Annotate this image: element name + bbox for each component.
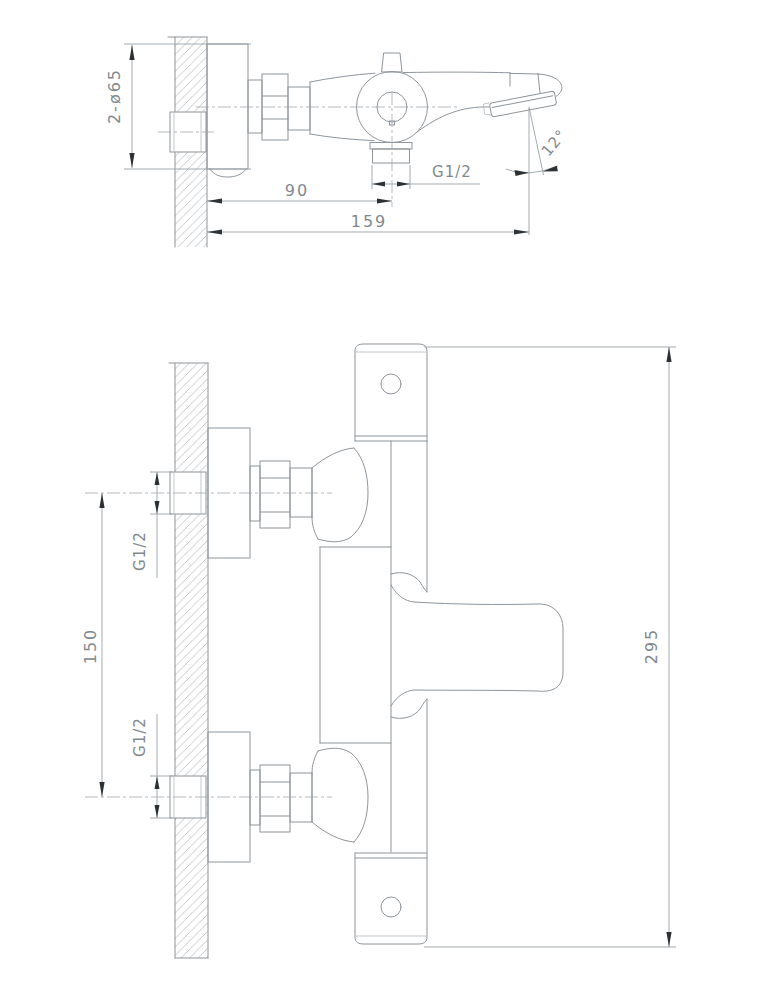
hex-nut-bottom [260, 765, 290, 832]
dim-wall-to-outlet: 90 [285, 181, 309, 200]
dim-inlet-top-thread: G1/2 [131, 531, 149, 571]
faucet-technical-drawing: 2-ø65 90 159 G1/2 12° [0, 0, 764, 1000]
shower-outlet [370, 143, 412, 150]
flange-side [207, 44, 248, 169]
handle-cap-top [355, 344, 427, 441]
cap-screw-top [381, 374, 401, 394]
dim-inlet-spacing: 150 [81, 628, 100, 665]
handle-cap-bottom [355, 853, 427, 944]
technical-drawing-page: 2-ø65 90 159 G1/2 12° [0, 0, 764, 1000]
dim-inlet-bottom-thread: G1/2 [131, 717, 149, 757]
faucet-body-side [170, 44, 562, 177]
dim-outlet-thread: G1/2 [432, 163, 472, 181]
dimensions-front: G1/2 G1/2 150 295 [81, 347, 676, 947]
faucet-body-front [170, 344, 563, 944]
front-view: G1/2 G1/2 150 295 [81, 344, 676, 958]
dim-spout-angle: 12° [538, 126, 571, 160]
dim-wall-to-spout: 159 [351, 212, 388, 231]
hex-nut-top [260, 461, 290, 528]
dim-flange-diameter: 2-ø65 [105, 68, 124, 124]
dim-overall-length: 295 [642, 628, 661, 665]
cap-screw-bottom [381, 897, 401, 917]
spout-aerator [489, 91, 556, 117]
wall-section-front [169, 363, 208, 958]
side-view: 2-ø65 90 159 G1/2 12° [105, 37, 571, 247]
spout-front [391, 573, 563, 719]
diverter-button [382, 53, 402, 72]
